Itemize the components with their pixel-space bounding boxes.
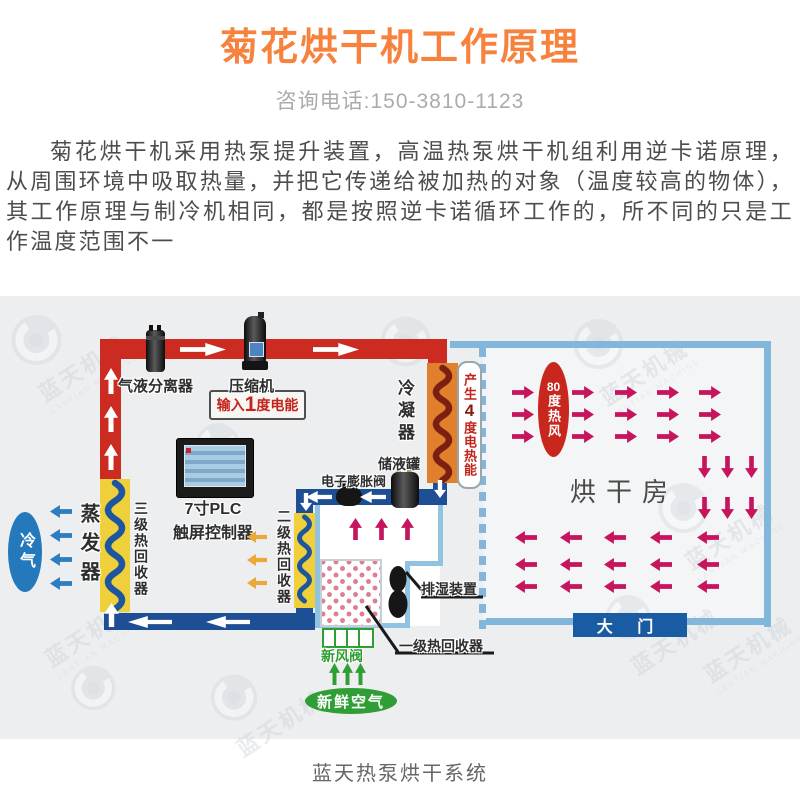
- diagram-caption: 蓝天热泵烘干系统: [0, 757, 800, 786]
- recovery2-label: 二级热回收器: [274, 509, 294, 605]
- evaporator-label: 蒸发器: [74, 503, 103, 590]
- recovery1-label: 一级热回收器: [399, 636, 483, 656]
- expansion-valve-label: 电子膨胀阀: [321, 471, 386, 490]
- page: { "header": { "title": "菊花烘干机工作原理", "pho…: [0, 16, 800, 800]
- dehumidifier-label: 排湿装置: [421, 579, 477, 599]
- heat-pump-diagram: 蓝天机械 LANTIAN MACHINE 蓝天机械 LANTIAN MACHIN…: [0, 296, 800, 739]
- page-title: 菊花烘干机工作原理: [0, 16, 800, 71]
- recovery3-label: 三级热回收器: [131, 501, 151, 597]
- callout-lines: [0, 296, 800, 739]
- compressor-label: 压缩机: [229, 375, 274, 396]
- intro-paragraph: 菊花烘干机采用热泵提升装置，高温热泵烘干机组利用逆卡诺原理，从周围环境中吸取热量…: [6, 137, 794, 257]
- drying-room-label: 烘干房: [570, 472, 678, 509]
- fresh-valve-label: 新风阀: [321, 646, 363, 666]
- condenser-label: 冷凝器: [392, 379, 417, 445]
- contact-phone: 咨询电话:150-3810-1123: [0, 85, 800, 115]
- separator-label: 气液分离器: [118, 375, 193, 396]
